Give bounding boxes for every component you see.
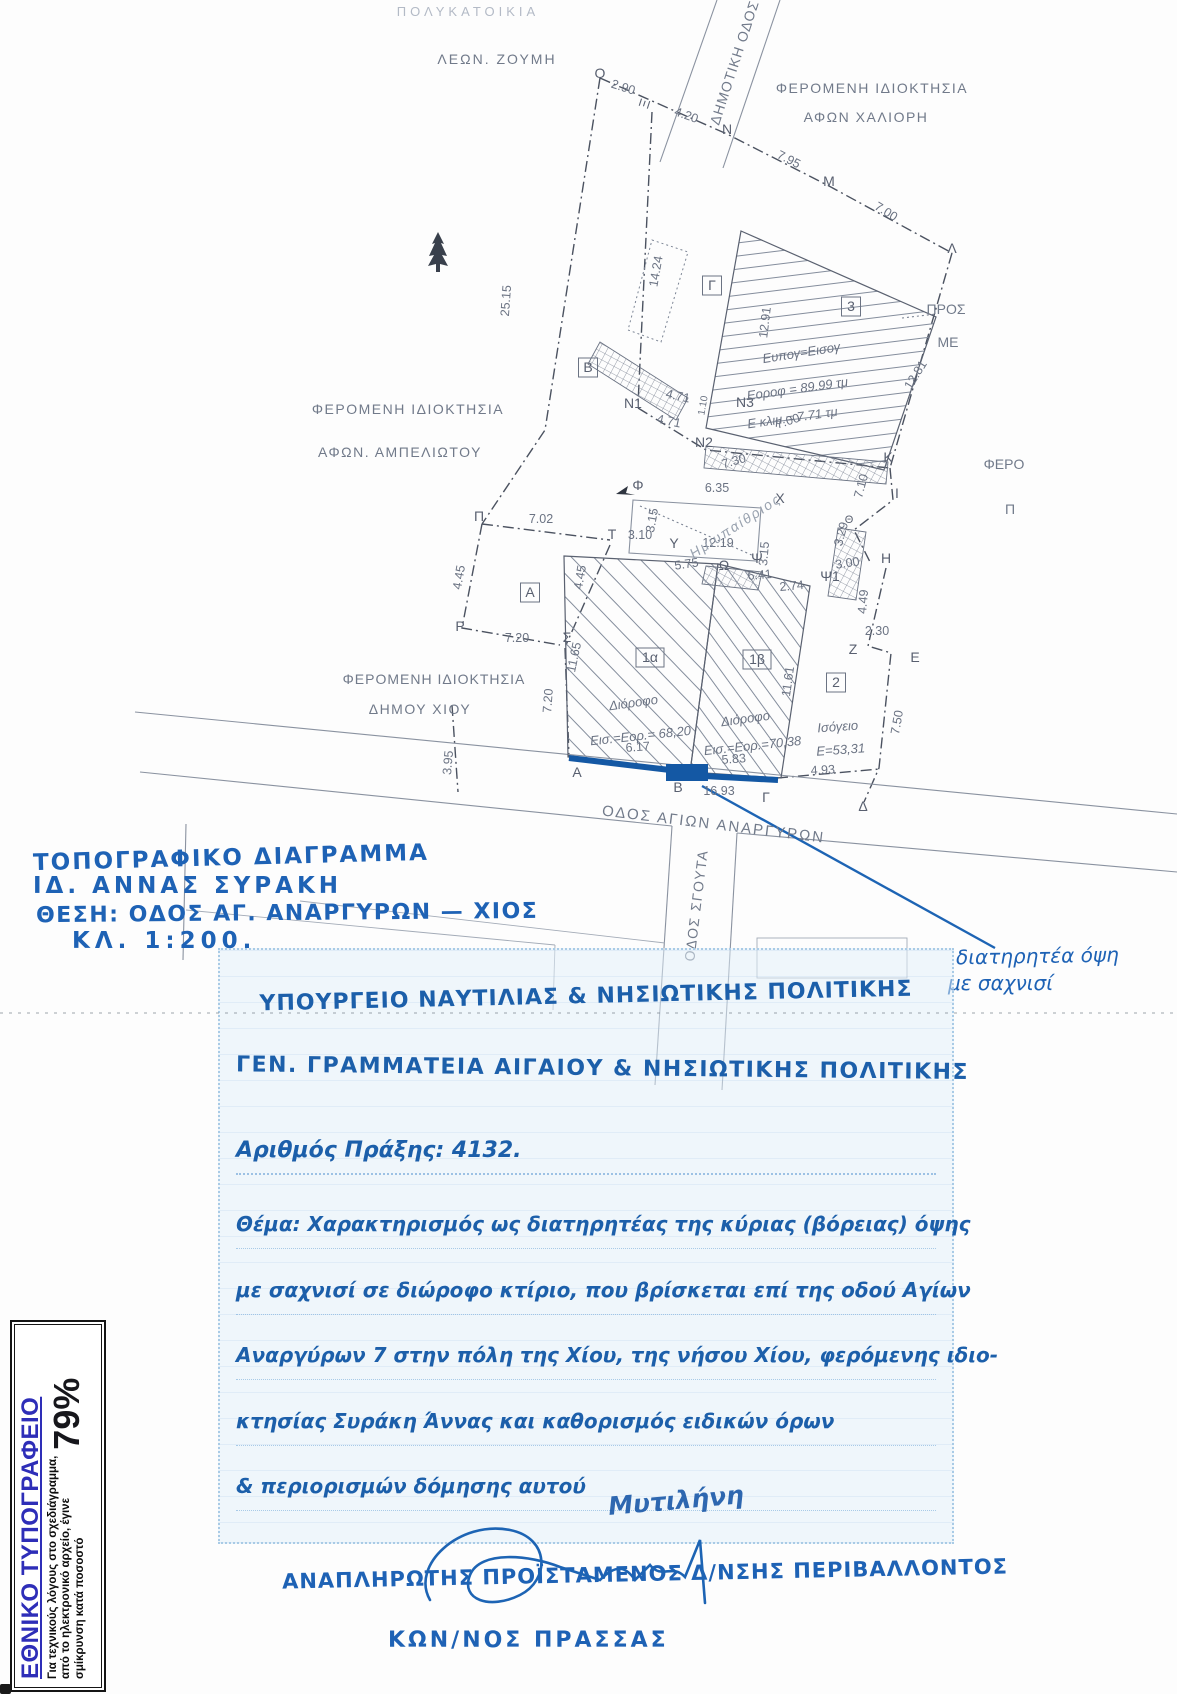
plan-label: 2.90	[609, 77, 637, 98]
road-lines	[135, 0, 1177, 1090]
preserved-facade-note-line: με σαχνισί	[948, 971, 1053, 995]
plan-label: Ζ	[849, 641, 858, 657]
reduction-note-line: Για τεχνικούς λόγους στο σχεδιάγραμμα,	[47, 1456, 61, 1679]
plan-label: 7.95	[775, 148, 803, 172]
plan-label: Κ	[883, 449, 893, 465]
ministry-stamp: ΥΠΟΥΡΓΕΙΟ ΝΑΥΤΙΛΙΑΣ & ΝΗΣΙΩΤΙΚΗΣ ΠΟΛΙΤΙΚ…	[218, 948, 954, 1544]
plan-label: 4.93	[810, 762, 835, 777]
plan-labels: ΠΟΛΥΚΑΤΟΙΚΙΑΛΕΩΝ. ΖΟΥΜΗΔΗΜΟΤΙΚΗ ΟΔΟΣΦΕΡΟ…	[312, 0, 1025, 962]
ministry-title: ΥΠΟΥΡΓΕΙΟ ΝΑΥΤΙΛΙΑΣ & ΝΗΣΙΩΤΙΚΗΣ ΠΟΛΙΤΙΚ…	[236, 976, 936, 1017]
plan-label: ΠΟΛΥΚΑΤΟΙΚΙΑ	[397, 4, 539, 19]
printing-office-title: ΕΘΝΙΚΟ ΤΥΠΟΓΡΑΦΕΙΟ	[17, 1327, 45, 1679]
plan-label: 4.49	[855, 589, 871, 615]
plan-label: 4.45	[450, 564, 468, 590]
plan-label: Υ	[669, 535, 679, 551]
preserved-facade-note-line: διατηρητέα όψη	[956, 943, 1119, 970]
plan-label: 7.00	[872, 199, 900, 224]
plan-label: Α	[525, 584, 535, 600]
plan-label: 7.02	[529, 512, 553, 526]
reduction-percent: 79%	[46, 1378, 88, 1450]
plan-label: ΠΡΟΣ	[927, 301, 966, 317]
signature-scribble	[400, 1505, 780, 1620]
plan-label: 6.41	[747, 567, 773, 583]
plan-label: ΦΕΡΟΜΕΝΗ ΙΔΙΟΚΤΗΣΙΑ	[776, 80, 968, 96]
subject-line: με σαχνισί σε διώροφο κτίριο, που βρίσκε…	[236, 1278, 936, 1315]
plan-label: Γ	[762, 789, 770, 805]
plan-label: 3.95	[440, 750, 456, 776]
plan-label: ΜΕ	[938, 334, 959, 350]
plan-label: 7.20	[505, 631, 529, 645]
plan-label: 2.74	[779, 578, 805, 594]
plan-label: Ω	[719, 557, 729, 573]
facade-highlight	[569, 758, 995, 948]
plan-label: Ισόγειο	[817, 718, 859, 736]
plan-label: ΛΕΩΝ. ΖΟΥΜΗ	[437, 51, 556, 67]
plan-label: 4.20	[673, 105, 701, 126]
plan-label: ΔΗΜΟΤΙΚΗ ΟΔΟΣ	[707, 0, 762, 127]
plan-label: 2	[832, 674, 840, 690]
plan-label: Γ	[708, 277, 716, 293]
plan-label: Ο	[595, 65, 606, 81]
secretariat-title: ΓΕΝ. ΓΡΑΜΜΑΤΕΙΑ ΑΙΓΑΙΟΥ & ΝΗΣΙΩΤΙΚΗΣ ΠΟΛ…	[236, 1052, 936, 1084]
scan-streak	[0, 1012, 1177, 1014]
plan-label: Ρ	[455, 618, 464, 634]
plan-label: Ι	[895, 485, 899, 501]
plan-label: Δ	[858, 798, 867, 814]
plan-label: 3.15	[756, 541, 772, 567]
tree-icon	[428, 232, 448, 272]
reduction-note-line: σμίκρυνση κατά ποσοστό	[74, 1456, 88, 1679]
plan-label: ΟΔΟΣ ΑΓΙΩΝ ΑΝΑΡΓΥΡΩΝ	[601, 802, 826, 846]
plan-label: ΑΦΩΝ. ΑΜΠΕΛΙΩΤΟΥ	[318, 444, 482, 460]
plan-label: Τ	[608, 526, 617, 542]
plan-label: Β	[583, 359, 592, 375]
printing-office-inner-border: ΕΘΝΙΚΟ ΤΥΠΟΓΡΑΦΕΙΟ Για τεχνικούς λόγους …	[14, 1324, 102, 1688]
plan-label: 3.10	[628, 528, 652, 542]
surveyor-note-line: ΙΔ. ΑΝΝΑΣ ΣΥΡΑΚΗ	[33, 873, 342, 899]
plan-label: 16.93	[703, 784, 734, 798]
plan-label: ΔΗΜΟΥ ΧΙΟΥ	[369, 701, 472, 717]
plan-label: 6.35	[705, 481, 729, 495]
plan-label: 7.20	[540, 688, 556, 713]
plan-label: Β	[673, 779, 682, 795]
leader-line	[702, 786, 995, 948]
plan-label: Α	[572, 764, 582, 780]
plan-label: Η	[881, 550, 891, 566]
subject-line: Αναργύρων 7 στην πόλη της Χίου, της νήσο…	[236, 1343, 936, 1380]
surveyor-note-line: ΘΕΣΗ: ΟΔΟΣ ΑΓ. ΑΝΑΡΓΥΡΩΝ — ΧΙΟΣ	[36, 899, 538, 928]
plan-label: ΦΕΡΟΜΕΝΗ ΙΔΙΟΚΤΗΣΙΑ	[343, 671, 526, 687]
plan-label: 1β	[749, 651, 765, 667]
plan-label: Ξ	[635, 97, 653, 111]
plan-label: 14.24	[646, 255, 665, 288]
subject-line: Θέμα: Χαρακτηρισμός ως διατηρητέας της κ…	[236, 1212, 936, 1249]
plan-label: Φ	[632, 477, 643, 493]
plan-label: 2.30	[865, 624, 889, 638]
subject-line: κτησίας Συράκη Άννας και καθορισμός ειδι…	[236, 1409, 936, 1446]
plan-label: Λ	[947, 240, 957, 256]
reduction-note-line: από το ηλεκτρονικό αρχείο, έγινε	[60, 1456, 74, 1679]
plan-label: Μ	[823, 173, 835, 189]
plan-label: ΦΕΡΟΜΕΝΗ ΙΔΙΟΚΤΗΣΙΑ	[312, 401, 504, 417]
plan-label: Ν2	[695, 434, 713, 450]
plan-label: ΟΔΟΣ ΣΓΟΥΤΑ	[681, 849, 711, 963]
plan-label: ΑΦΩΝ ΧΑΛΙΟΡΗ	[804, 109, 929, 125]
printing-office-box: ΕΘΝΙΚΟ ΤΥΠΟΓΡΑΦΕΙΟ Για τεχνικούς λόγους …	[10, 1320, 106, 1692]
plan-label: Ε=53,31	[816, 740, 866, 758]
plan-label: ΦΕΡΟ	[984, 456, 1025, 472]
scan-corner-artifact	[0, 1684, 11, 1694]
plan-label: 25.15	[498, 285, 514, 317]
plan-label: 3	[847, 298, 855, 314]
act-number: Αριθμός Πράξης: 4132.	[236, 1138, 936, 1175]
plan-label: Ν	[722, 121, 732, 137]
plan-label: Ε	[910, 649, 919, 665]
plan-label: Π	[474, 508, 484, 524]
plan-label: Π	[1005, 501, 1015, 517]
reduction-note: Για τεχνικούς λόγους στο σχεδιάγραμμα, α…	[47, 1456, 88, 1679]
plan-label: 1α	[642, 649, 658, 665]
plan-label: 7.50	[888, 709, 906, 735]
plan-label: Ν1	[624, 395, 642, 411]
signature-name: ΚΩΝ/ΝΟΣ ΠΡΑΣΣΑΣ	[388, 1628, 669, 1653]
